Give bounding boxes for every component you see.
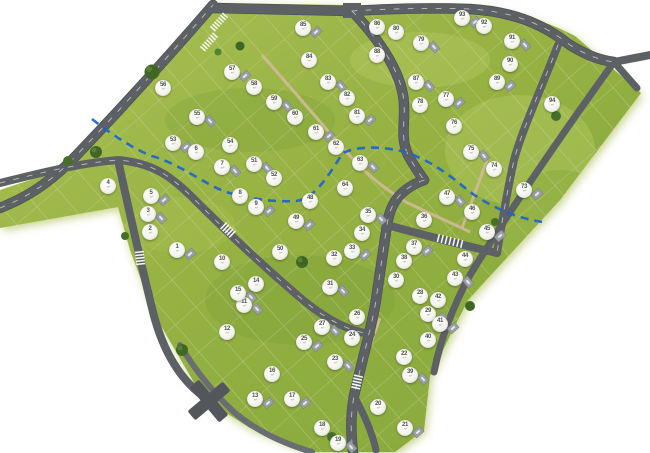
lot-marker[interactable]: 6m² <box>188 144 204 160</box>
lot-area-label: m² <box>236 293 240 296</box>
lot-area-label: m² <box>252 87 256 90</box>
lot-marker[interactable]: 77m² <box>438 91 454 107</box>
lot-area-label: m² <box>426 314 430 317</box>
lot-area-label: m² <box>510 41 514 44</box>
lot-area-label: m² <box>272 102 276 105</box>
lot-area-label: m² <box>328 287 332 290</box>
lot-marker[interactable]: 14m² <box>248 276 264 292</box>
lot-marker[interactable]: 23m² <box>327 354 343 370</box>
site-plan-map <box>0 0 650 453</box>
lot-area-label: m² <box>175 250 179 253</box>
lot-marker[interactable]: 34m² <box>354 225 370 241</box>
lot-marker[interactable]: 39m² <box>402 367 418 383</box>
lot-area-label: m² <box>485 232 489 235</box>
lot-marker[interactable]: 4m² <box>100 178 116 194</box>
lot-area-label: m² <box>293 117 297 120</box>
lot-area-label: m² <box>220 167 224 170</box>
lot-area-label: m² <box>419 43 423 46</box>
lot-area-label: m² <box>148 232 152 235</box>
lot-area-label: m² <box>290 399 294 402</box>
lot-marker[interactable]: 78m² <box>412 97 428 113</box>
lot-marker[interactable]: 37m² <box>406 239 422 255</box>
lot-area-label: m² <box>238 196 242 199</box>
lot-area-label: m² <box>445 197 449 200</box>
lot-marker[interactable]: 94m² <box>544 96 560 112</box>
lot-marker[interactable]: 7m² <box>214 159 230 175</box>
lot-area-label: m² <box>394 280 398 283</box>
lot-area-label: m² <box>195 117 199 120</box>
lot-marker[interactable]: 40m² <box>420 332 436 348</box>
lot-marker[interactable]: 26m² <box>349 309 365 325</box>
lot-area-label: m² <box>320 428 324 431</box>
lot-marker[interactable]: 63m² <box>352 155 368 171</box>
lot-area-label: m² <box>463 259 467 262</box>
lot-marker[interactable]: 28m² <box>412 288 428 304</box>
lot-area-label: m² <box>414 82 418 85</box>
lot-area-label: m² <box>294 221 298 224</box>
junction-top <box>343 3 361 18</box>
tree-icon <box>121 232 129 240</box>
lot-area-label: m² <box>453 278 457 281</box>
lot-marker[interactable]: 84m² <box>301 52 317 68</box>
lot-marker[interactable]: 32m² <box>326 250 342 266</box>
lot-marker[interactable]: 64m² <box>337 180 353 196</box>
lot-area-label: m² <box>253 399 257 402</box>
lot-area-label: m² <box>171 143 175 146</box>
lot-area-label: m² <box>106 186 110 189</box>
lot-area-label: m² <box>225 332 229 335</box>
lot-marker[interactable]: 3m² <box>140 206 156 222</box>
lot-marker[interactable]: 58m² <box>246 79 262 95</box>
lot-marker[interactable]: 8m² <box>232 188 248 204</box>
lot-area-label: m² <box>444 99 448 102</box>
lot-marker[interactable]: 79m² <box>413 35 429 51</box>
lot-marker[interactable]: 75m² <box>463 144 479 160</box>
lot-area-label: m² <box>403 428 407 431</box>
lot-marker[interactable]: 50m² <box>272 244 288 260</box>
lot-area-label: m² <box>402 357 406 360</box>
lot-marker[interactable]: 74m² <box>486 161 502 177</box>
lot-area-label: m² <box>220 262 224 265</box>
site-plan: 1m²2m²3m²4m²5m²6m²7m²8m²9m²10m²11m²12m²1… <box>0 0 650 453</box>
lot-area-label: m² <box>495 82 499 85</box>
lot-area-label: m² <box>452 126 456 129</box>
lot-marker[interactable]: 13m² <box>247 391 263 407</box>
lot-marker[interactable]: 22m² <box>396 349 412 365</box>
lot-area-label: m² <box>252 164 256 167</box>
lot-area-label: m² <box>355 116 359 119</box>
lot-area-label: m² <box>254 207 258 210</box>
tree-icon <box>551 111 561 121</box>
lot-marker[interactable]: 16m² <box>264 366 280 382</box>
lot-marker[interactable]: 18m² <box>314 420 330 436</box>
lot-marker[interactable]: 9m² <box>248 199 264 215</box>
lot-area-label: m² <box>360 233 364 236</box>
lot-marker[interactable]: 51m² <box>246 156 262 172</box>
lot-area-label: m² <box>522 190 526 193</box>
lot-marker[interactable]: 30m² <box>388 272 404 288</box>
lot-marker[interactable]: 92m² <box>476 18 492 34</box>
lot-area-label: m² <box>438 324 442 327</box>
lot-area-label: m² <box>270 374 274 377</box>
lot-area-label: m² <box>320 327 324 330</box>
lot-marker[interactable]: 57m² <box>224 64 240 80</box>
lot-marker[interactable]: 46m² <box>464 204 480 220</box>
lot-area-label: m² <box>149 196 153 199</box>
lot-marker[interactable]: 12m² <box>219 324 235 340</box>
lot-marker[interactable]: 5m² <box>143 188 159 204</box>
lot-marker[interactable]: 80m² <box>388 24 404 40</box>
lot-marker[interactable]: 89m² <box>489 74 505 90</box>
lot-area-label: m² <box>412 247 416 250</box>
lot-area-label: m² <box>326 82 330 85</box>
lot-area-label: m² <box>422 220 426 223</box>
lot-marker[interactable]: 87m² <box>408 74 424 90</box>
lot-area-label: m² <box>194 152 198 155</box>
lot-area-label: m² <box>228 145 232 148</box>
tree-icon <box>63 156 73 166</box>
lot-area-label: m² <box>343 188 347 191</box>
lot-marker[interactable]: 81m² <box>349 108 365 124</box>
lot-area-label: m² <box>302 342 306 345</box>
lot-area-label: m² <box>358 163 362 166</box>
road-top <box>213 8 352 11</box>
lot-area-label: m² <box>366 215 370 218</box>
lot-marker[interactable]: 35m² <box>360 207 376 223</box>
lot-area-label: m² <box>418 296 422 299</box>
tree-icon <box>465 301 475 311</box>
lot-area-label: m² <box>408 375 412 378</box>
lot-area-label: m² <box>402 261 406 264</box>
lot-marker[interactable]: 43m² <box>447 270 463 286</box>
lot-marker[interactable]: 1m² <box>169 242 185 258</box>
lot-area-label: m² <box>394 32 398 35</box>
lot-marker[interactable]: 91m² <box>504 33 520 49</box>
lot-marker[interactable]: 76m² <box>446 118 462 134</box>
lot-area-label: m² <box>375 55 379 58</box>
lot-marker[interactable]: 38m² <box>396 253 412 269</box>
lot-marker[interactable]: 47m² <box>439 189 455 205</box>
lot-area-label: m² <box>376 407 380 410</box>
lot-marker[interactable]: 25m² <box>296 334 312 350</box>
lot-area-label: m² <box>436 300 440 303</box>
lot-marker[interactable]: 21m² <box>397 420 413 436</box>
lot-marker[interactable]: 48m² <box>302 193 318 209</box>
tree-icon <box>176 344 188 356</box>
lot-marker[interactable]: 36m² <box>416 212 432 228</box>
lot-marker[interactable]: 20m² <box>370 399 386 415</box>
lot-marker[interactable]: 88m² <box>369 47 385 63</box>
lot-area-label: m² <box>161 88 165 91</box>
lot-marker[interactable]: 83m² <box>320 74 336 90</box>
lot-marker[interactable]: 82m² <box>339 90 355 106</box>
lot-marker[interactable]: 17m² <box>284 391 300 407</box>
lot-area-label: m² <box>418 105 422 108</box>
tree-icon <box>145 65 160 80</box>
lot-area-label: m² <box>550 104 554 107</box>
lot-area-label: m² <box>375 27 379 30</box>
lot-marker[interactable]: 19m² <box>330 435 346 451</box>
lot-marker[interactable]: 56m² <box>155 80 171 96</box>
lot-area-label: m² <box>332 258 336 261</box>
lot-marker[interactable]: 33m² <box>344 243 360 259</box>
lot-marker[interactable]: 44m² <box>457 251 473 267</box>
lot-area-label: m² <box>254 284 258 287</box>
lot-marker[interactable]: 2m² <box>142 224 158 240</box>
lot-marker[interactable]: 86m² <box>369 19 385 35</box>
lot-marker[interactable]: 27m² <box>314 319 330 335</box>
lot-marker[interactable]: 61m² <box>308 124 324 140</box>
lot-marker[interactable]: 42m² <box>430 292 446 308</box>
lot-area-label: m² <box>492 169 496 172</box>
lot-marker[interactable]: 15m² <box>230 285 246 301</box>
tree-icon <box>296 256 308 268</box>
lot-area-label: m² <box>334 147 338 150</box>
lot-marker[interactable]: 93m² <box>454 10 470 26</box>
lot-area-label: m² <box>307 60 311 63</box>
lot-marker[interactable]: 53m² <box>165 135 181 151</box>
tree-icon <box>491 218 499 226</box>
lot-area-label: m² <box>278 252 282 255</box>
lot-area-label: m² <box>426 340 430 343</box>
lot-marker[interactable]: 54m² <box>222 137 238 153</box>
lot-area-label: m² <box>308 201 312 204</box>
lot-marker[interactable]: 85m² <box>295 20 311 36</box>
tree-icon <box>90 146 102 158</box>
lot-marker[interactable]: 31m² <box>322 279 338 295</box>
tree-icon <box>215 49 222 56</box>
lot-marker[interactable]: 62m² <box>328 139 344 155</box>
lot-area-label: m² <box>469 152 473 155</box>
lot-area-label: m² <box>345 98 349 101</box>
tree-icon <box>236 42 245 51</box>
lot-area-label: m² <box>333 362 337 365</box>
lot-area-label: m² <box>230 72 234 75</box>
lot-marker[interactable]: 24m² <box>344 330 360 346</box>
lot-area-label: m² <box>272 178 276 181</box>
lot-marker[interactable]: 52m² <box>266 170 282 186</box>
lot-area-label: m² <box>336 443 340 446</box>
lot-area-label: m² <box>350 338 354 341</box>
lot-area-label: m² <box>146 214 150 217</box>
lot-marker[interactable]: 73m² <box>516 182 532 198</box>
lot-area-label: m² <box>242 305 246 308</box>
lot-area-label: m² <box>350 251 354 254</box>
lot-marker[interactable]: 10m² <box>214 254 230 270</box>
lot-marker[interactable]: 49m² <box>288 213 304 229</box>
lot-area-label: m² <box>301 28 305 31</box>
lot-area-label: m² <box>508 64 512 67</box>
lot-area-label: m² <box>314 132 318 135</box>
lot-area-label: m² <box>355 317 359 320</box>
lot-area-label: m² <box>460 18 464 21</box>
lot-marker[interactable]: 55m² <box>189 109 205 125</box>
lot-marker[interactable]: 90m² <box>502 56 518 72</box>
lot-area-label: m² <box>470 212 474 215</box>
road-exit-east <box>614 55 650 62</box>
lot-marker[interactable]: 60m² <box>287 109 303 125</box>
lot-area-label: m² <box>482 26 486 29</box>
lot-marker[interactable]: 45m² <box>479 224 495 240</box>
lot-marker[interactable]: 59m² <box>266 94 282 110</box>
lot-marker[interactable]: 41m² <box>432 316 448 332</box>
